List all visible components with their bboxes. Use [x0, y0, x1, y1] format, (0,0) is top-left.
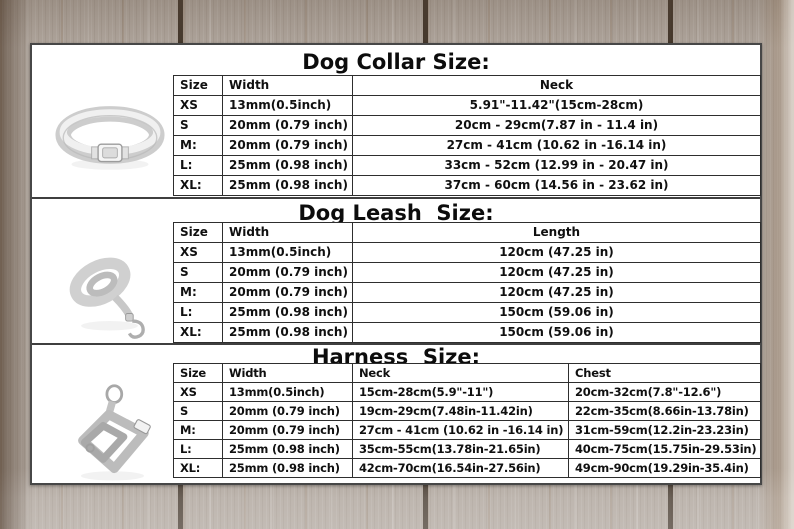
table-cell: XL: — [174, 176, 223, 196]
table-cell: 42cm-70cm(16.54in-27.56in) — [353, 459, 569, 478]
column-header: Width — [223, 364, 353, 383]
table-row: XL:25mm (0.98 inch)42cm-70cm(16.54in-27.… — [174, 459, 761, 478]
table-cell: L: — [174, 440, 223, 459]
harness-photo — [58, 383, 166, 491]
table-cell: 15cm-28cm(5.9"-11") — [353, 383, 569, 402]
table-cell: 20mm (0.79 inch) — [223, 116, 353, 136]
table-cell: 150cm (59.06 in) — [353, 323, 761, 343]
table-row: S20mm (0.79 inch)20cm - 29cm(7.87 in - 1… — [174, 116, 761, 136]
table-cell: 5.91"-11.42"(15cm-28cm) — [353, 96, 761, 116]
table-header-row: SizeWidthLength — [174, 223, 761, 243]
table-cell: 31cm-59cm(12.2in-23.23in) — [569, 421, 761, 440]
table-cell: 20mm (0.79 inch) — [223, 283, 353, 303]
table-row: XS13mm(0.5inch)15cm-28cm(5.9"-11")20cm-3… — [174, 383, 761, 402]
leash-illustration — [60, 250, 160, 340]
table-cell: L: — [174, 156, 223, 176]
table-row: XS13mm(0.5inch)5.91"-11.42"(15cm-28cm) — [174, 96, 761, 116]
table-row: XS13mm(0.5inch)120cm (47.25 in) — [174, 243, 761, 263]
table-cell: 25mm (0.98 inch) — [223, 323, 353, 343]
column-header: Length — [353, 223, 761, 243]
collar-section-title: Dog Collar Size: — [32, 45, 760, 75]
table-cell: 13mm(0.5inch) — [223, 243, 353, 263]
table-cell: 25mm (0.98 inch) — [223, 459, 353, 478]
table-cell: 20mm (0.79 inch) — [223, 136, 353, 156]
table-cell: 19cm-29cm(7.48in-11.42in) — [353, 402, 569, 421]
table-row: L:25mm (0.98 inch)150cm (59.06 in) — [174, 303, 761, 323]
table-cell: 13mm(0.5inch) — [223, 96, 353, 116]
column-header: Width — [223, 76, 353, 96]
table-cell: XS — [174, 243, 223, 263]
table-cell: 20mm (0.79 inch) — [223, 421, 353, 440]
harness-illustration — [58, 383, 166, 487]
table-cell: XL: — [174, 459, 223, 478]
collar-illustration — [55, 95, 165, 185]
table-cell: 13mm(0.5inch) — [223, 383, 353, 402]
table-cell: 150cm (59.06 in) — [353, 303, 761, 323]
table-cell: 25mm (0.98 inch) — [223, 156, 353, 176]
table-cell: 120cm (47.25 in) — [353, 263, 761, 283]
column-header: Size — [174, 364, 223, 383]
table-cell: 22cm-35cm(8.66in-13.78in) — [569, 402, 761, 421]
table-cell: 40cm-75cm(15.75in-29.53in) — [569, 440, 761, 459]
table-row: XL:25mm (0.98 inch)37cm - 60cm (14.56 in… — [174, 176, 761, 196]
table-row: S20mm (0.79 inch)120cm (47.25 in) — [174, 263, 761, 283]
leash-size-table: SizeWidthLengthXS13mm(0.5inch)120cm (47.… — [173, 222, 761, 343]
table-cell: L: — [174, 303, 223, 323]
leash-swivel — [126, 313, 134, 321]
table-cell: S — [174, 116, 223, 136]
table-row: M:20mm (0.79 inch)27cm - 41cm (10.62 in … — [174, 421, 761, 440]
column-header: Chest — [569, 364, 761, 383]
harness-dring — [107, 386, 122, 403]
table-row: L:25mm (0.98 inch)35cm-55cm(13.78in-21.6… — [174, 440, 761, 459]
column-header: Neck — [353, 364, 569, 383]
table-row: L:25mm (0.98 inch)33cm - 52cm (12.99 in … — [174, 156, 761, 176]
leash-strap — [115, 297, 129, 315]
table-cell: S — [174, 402, 223, 421]
table-cell: 25mm (0.98 inch) — [223, 303, 353, 323]
table-cell: XL: — [174, 323, 223, 343]
table-cell: S — [174, 263, 223, 283]
table-cell: 49cm-90cm(19.29in-35.4in) — [569, 459, 761, 478]
table-cell: 20mm (0.79 inch) — [223, 402, 353, 421]
table-cell: 25mm (0.98 inch) — [223, 440, 353, 459]
table-cell: M: — [174, 421, 223, 440]
column-header: Size — [174, 223, 223, 243]
table-cell: XS — [174, 383, 223, 402]
size-chart-panel: Dog Collar Size: SizeWidthNeckXS13mm(0.5… — [30, 43, 762, 485]
leash-section: Dog Leash Size: SizeWidthLengthXS13mm(0.… — [32, 197, 760, 343]
table-row: S20mm (0.79 inch)19cm-29cm(7.48in-11.42i… — [174, 402, 761, 421]
table-cell: 120cm (47.25 in) — [353, 243, 761, 263]
table-cell: 120cm (47.25 in) — [353, 283, 761, 303]
table-cell: 20cm-32cm(7.8"-12.6") — [569, 383, 761, 402]
column-header: Neck — [353, 76, 761, 96]
table-header-row: SizeWidthNeck — [174, 76, 761, 96]
column-header: Width — [223, 223, 353, 243]
harness-section: Harness Size: SizeWidthNeckChestXS13mm(0… — [32, 343, 760, 483]
table-cell: 37cm - 60cm (14.56 in - 23.62 in) — [353, 176, 761, 196]
leash-photo — [60, 250, 160, 344]
table-row: M:20mm (0.79 inch)120cm (47.25 in) — [174, 283, 761, 303]
table-cell: 20mm (0.79 inch) — [223, 263, 353, 283]
collar-size-table: SizeWidthNeckXS13mm(0.5inch)5.91"-11.42"… — [173, 75, 761, 196]
table-cell: 25mm (0.98 inch) — [223, 176, 353, 196]
column-header: Size — [174, 76, 223, 96]
table-cell: 20cm - 29cm(7.87 in - 11.4 in) — [353, 116, 761, 136]
table-cell: XS — [174, 96, 223, 116]
table-cell: M: — [174, 283, 223, 303]
harness-size-table: SizeWidthNeckChestXS13mm(0.5inch)15cm-28… — [173, 363, 761, 478]
table-row: XL:25mm (0.98 inch)150cm (59.06 in) — [174, 323, 761, 343]
table-cell: M: — [174, 136, 223, 156]
collar-photo — [55, 95, 165, 189]
table-cell: 33cm - 52cm (12.99 in - 20.47 in) — [353, 156, 761, 176]
harness-outer-loop — [83, 415, 144, 469]
table-header-row: SizeWidthNeckChest — [174, 364, 761, 383]
table-row: M:20mm (0.79 inch)27cm - 41cm (10.62 in … — [174, 136, 761, 156]
table-cell: 27cm - 41cm (10.62 in -16.14 in) — [353, 136, 761, 156]
collar-section: Dog Collar Size: SizeWidthNeckXS13mm(0.5… — [32, 45, 760, 197]
table-cell: 35cm-55cm(13.78in-21.65in) — [353, 440, 569, 459]
wood-background: Dog Collar Size: SizeWidthNeckXS13mm(0.5… — [0, 0, 794, 529]
table-cell: 27cm - 41cm (10.62 in -16.14 in) — [353, 421, 569, 440]
